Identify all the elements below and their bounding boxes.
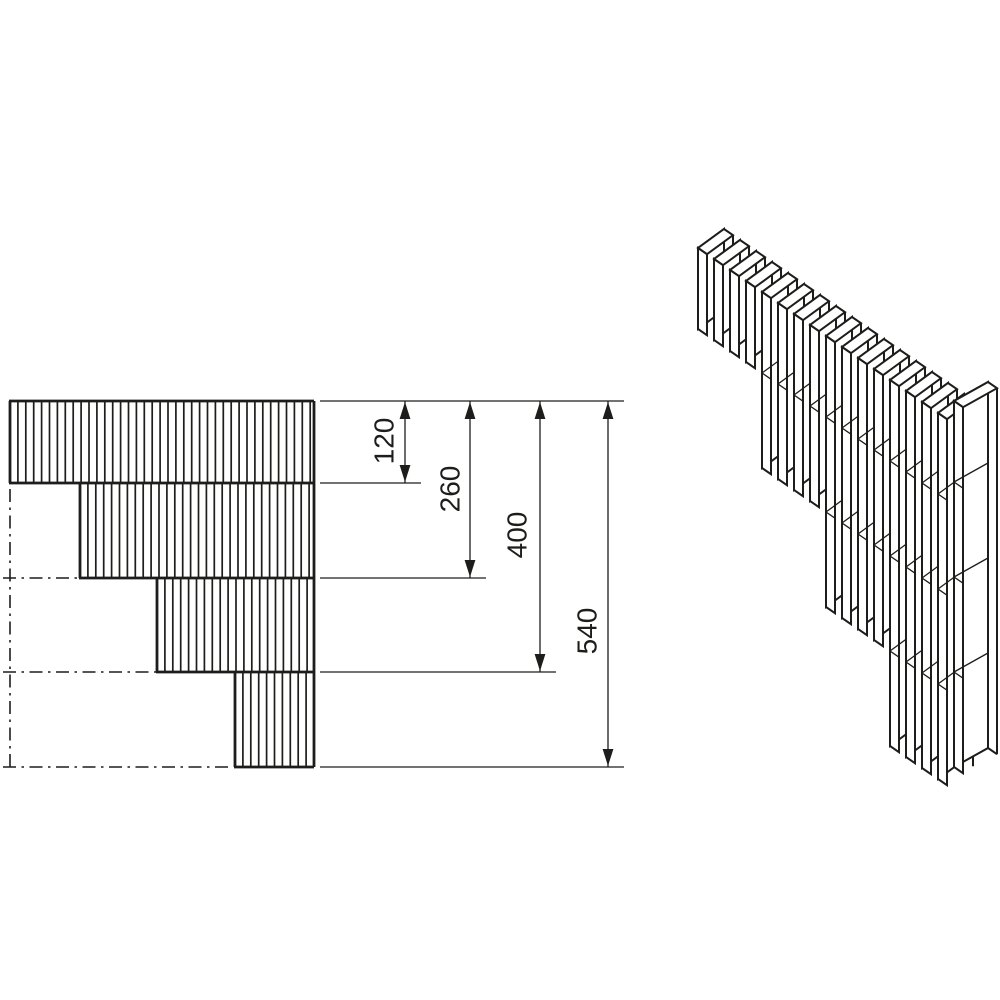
course-row-3-hatch [165,578,307,672]
dimension-group: 120260400540 [320,401,624,767]
dimension-400: 400 [320,401,556,672]
dimension-540: 540 [320,401,624,767]
dimension-label-120: 120 [368,418,399,465]
dimension-260: 260 [320,401,486,578]
dimension-label-260: 260 [434,466,465,513]
course-row-1-hatch [18,401,310,483]
elevation-view [3,401,314,767]
elevation-hatch [18,401,310,767]
course-row-4-hatch [243,672,306,767]
dimension-label-540: 540 [571,608,602,655]
technical-drawing: 120260400540 [0,0,1000,1000]
dimension-label-400: 400 [501,512,532,559]
isometric-view [698,229,997,785]
drawing-svg: 120260400540 [0,0,1000,1000]
dimension-120: 120 [320,401,421,483]
course-row-2-hatch [88,483,309,578]
corner-column [954,382,997,773]
centerlines [3,489,234,767]
